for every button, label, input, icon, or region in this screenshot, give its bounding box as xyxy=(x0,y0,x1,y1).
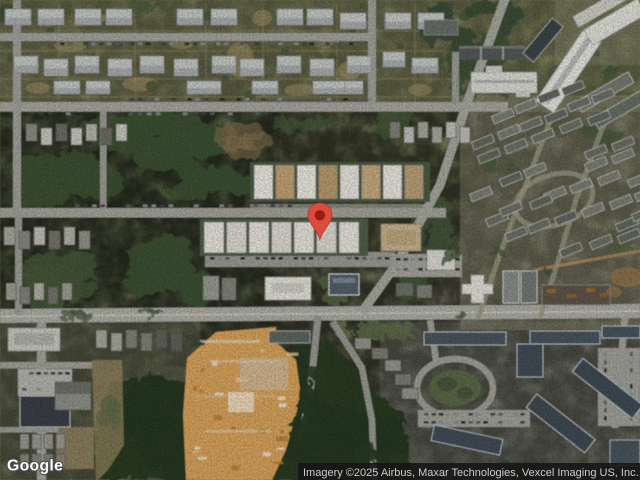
svg-text:Imagery ©2025 Airbus, Maxar Te: Imagery ©2025 Airbus, Maxar Technologies… xyxy=(303,467,639,479)
svg-text:Google: Google xyxy=(7,458,63,475)
